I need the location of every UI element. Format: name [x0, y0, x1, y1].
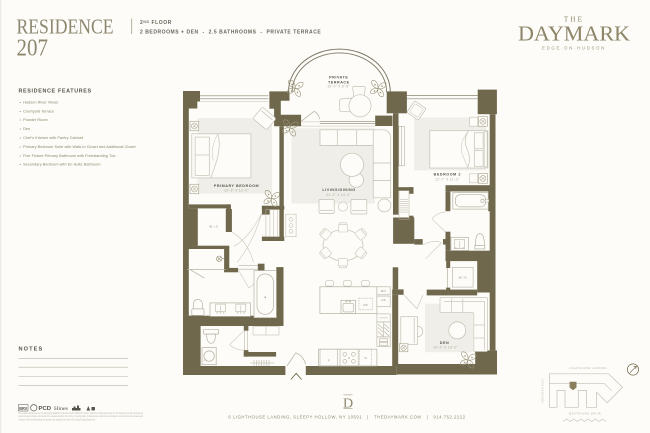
- svg-text:M: M: [365, 356, 367, 360]
- svg-text:15'-0" X 8'-8": 15'-0" X 8'-8": [327, 85, 350, 89]
- svg-text:• Den: • Den: [20, 127, 31, 131]
- svg-text:• Chef's Kitchen with Pantry: • Chef's Kitchen with Pantry Cabinet: [20, 136, 85, 140]
- svg-text:P: P: [328, 359, 330, 363]
- svg-text:LIGHTHOUSE LANDING: LIGHTHOUSE LANDING: [569, 366, 607, 370]
- svg-text:21'-2" X 14'-3": 21'-2" X 14'-3": [326, 193, 351, 197]
- svg-text:RESIDENCE FEATURES: RESIDENCE FEATURES: [19, 89, 92, 95]
- svg-text:BRV: BRV: [19, 406, 28, 411]
- svg-text:A/S: A/S: [381, 299, 386, 302]
- svg-text:DEN: DEN: [440, 341, 449, 345]
- svg-text:R: R: [348, 356, 350, 360]
- svg-text:207: 207: [17, 36, 49, 62]
- svg-text:• Secondary Bedroom with En-S: • Secondary Bedroom with En-Suite Bathro…: [20, 163, 101, 167]
- svg-text:PRIVATE: PRIVATE: [329, 76, 348, 80]
- svg-text:tolerances. Plans and dimensio: tolerances. Plans and dimensions may con…: [19, 418, 96, 421]
- svg-text:• Courtyard Terrace: • Courtyard Terrace: [20, 109, 55, 113]
- svg-text:WESTHAVEN DRIVE: WESTHAVEN DRIVE: [569, 412, 601, 416]
- svg-text:D: D: [343, 396, 353, 411]
- svg-text:LIVING/DINING: LIVING/DINING: [322, 188, 355, 192]
- svg-text:2 BEDROOMS + DEN - 2.5 BATHR: 2 BEDROOMS + DEN - 2.5 BATHROOMS - PRIVA…: [140, 29, 321, 35]
- svg-text:DW: DW: [363, 303, 368, 307]
- svg-text:• Hudson River Views: • Hudson River Views: [20, 100, 59, 104]
- svg-text:• Powder Room: • Powder Room: [20, 118, 48, 122]
- svg-text:EDGE·ON·HUDSON: EDGE·ON·HUDSON: [542, 45, 606, 50]
- svg-text:W.I.C: W.I.C: [209, 224, 219, 228]
- svg-text:NOTES: NOTES: [19, 347, 44, 353]
- svg-text:BEDROOM 2: BEDROOM 2: [434, 173, 461, 177]
- svg-text:W / D: W / D: [459, 276, 467, 280]
- svg-text:13'-6" X 12'-2": 13'-6" X 12'-2": [224, 189, 249, 193]
- svg-text:• Primary Bedroom Suite with: • Primary Bedroom Suite with Walk-In Clo…: [20, 145, 137, 149]
- svg-text:W/C: W/C: [381, 290, 386, 293]
- svg-text:12'-7" X 11'-2": 12'-7" X 11'-2": [435, 178, 459, 182]
- svg-text:DAYMARK: DAYMARK: [518, 22, 630, 46]
- svg-text:6 LIGHTHOUSE LANDING, SLEEPY H: 6 LIGHTHOUSE LANDING, SLEEPY HOLLOW, NY …: [228, 415, 465, 420]
- svg-text:PRIMARY BEDROOM: PRIMARY BEDROOM: [214, 184, 259, 188]
- svg-text:• Five Fixture Primary Bathro: • Five Fixture Primary Bathroom with Fre…: [20, 154, 116, 158]
- svg-text:10'-0" X 10'-2": 10'-0" X 10'-2": [433, 345, 458, 349]
- svg-text:HORIZONS BLVD: HORIZONS BLVD: [542, 378, 545, 403]
